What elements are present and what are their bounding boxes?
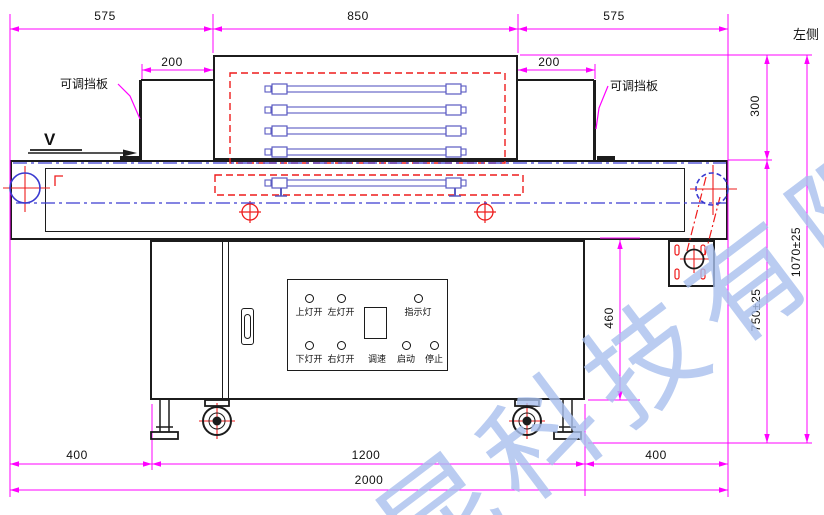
indicator-light [414, 294, 423, 303]
view-side-label: 左侧 [793, 24, 819, 43]
left-lamp-switch[interactable] [337, 294, 346, 303]
speed-control-knob[interactable] [364, 307, 387, 339]
belt-direction-label: V [44, 130, 55, 150]
right-baffle-top-rail [518, 79, 594, 81]
dim-belt-to-floor: 750±25 [749, 289, 763, 332]
dim-cabinet-height: 460 [602, 307, 616, 329]
control-panel: 上灯开 左灯开 指示灯 下灯开 右灯开 调速 启动 停止 [287, 279, 448, 371]
dim-bottom-right: 400 [645, 448, 667, 462]
dim-overall-width: 2000 [355, 473, 384, 487]
lower-lamp-switch-label: 下灯开 [295, 352, 322, 365]
lower-lamp-switch[interactable] [305, 341, 314, 350]
engineering-drawing-canvas: 上灯开 左灯开 指示灯 下灯开 右灯开 调速 启动 停止 575 850 575… [0, 0, 824, 515]
dim-top-right: 575 [603, 9, 625, 23]
left-baffle-top-rail [141, 79, 213, 81]
uv-lamp-hood [213, 55, 518, 160]
motor-bracket [668, 240, 715, 287]
stop-button[interactable] [430, 341, 439, 350]
left-lamp-switch-label: 左灯开 [327, 305, 354, 318]
dim-bottom-left: 400 [66, 448, 88, 462]
right-baffle-foot [597, 156, 615, 161]
dim-right-baffle-offset: 200 [538, 55, 560, 69]
start-button[interactable] [402, 341, 411, 350]
upper-lamp-switch-label: 上灯开 [295, 305, 322, 318]
dim-left-baffle-offset: 200 [161, 55, 183, 69]
speed-control-label: 调速 [368, 352, 386, 365]
dim-hood-height: 300 [748, 95, 762, 117]
dim-top-center: 850 [347, 9, 369, 23]
door-handle-grip [244, 314, 251, 339]
cabinet-door-divider [222, 242, 229, 398]
dim-bottom-center: 1200 [352, 448, 381, 462]
right-lamp-switch-label: 右灯开 [327, 352, 354, 365]
start-button-label: 启动 [397, 352, 415, 365]
dim-top-left: 575 [94, 9, 116, 23]
upper-lamp-switch[interactable] [305, 294, 314, 303]
left-baffle-plate [139, 80, 142, 161]
right-lamp-switch[interactable] [337, 341, 346, 350]
left-baffle-callout: 可调挡板 [60, 75, 108, 92]
right-baffle-plate [593, 80, 596, 161]
stop-button-label: 停止 [425, 352, 443, 365]
conveyor-inner-frame [45, 168, 685, 232]
right-baffle-callout: 可调挡板 [610, 77, 658, 94]
indicator-light-label: 指示灯 [404, 305, 431, 318]
dim-overall-height: 1070±25 [789, 227, 803, 277]
left-baffle-foot [120, 156, 139, 161]
